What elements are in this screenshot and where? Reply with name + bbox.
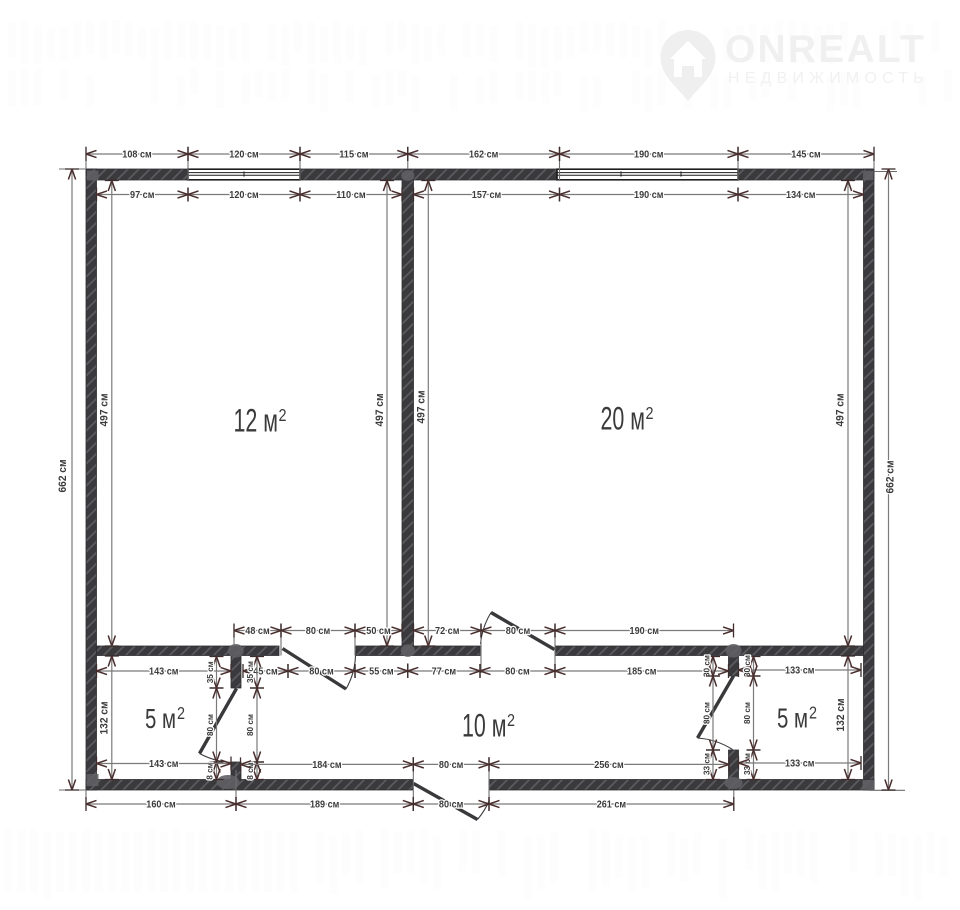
svg-text:185 см: 185 см bbox=[627, 666, 657, 678]
svg-text:2: 2 bbox=[177, 703, 185, 723]
svg-text:497 см: 497 см bbox=[99, 394, 111, 427]
svg-text:НЕДВИЖИМОСТЬ: НЕДВИЖИМОСТЬ bbox=[728, 70, 929, 87]
svg-text:35 см: 35 см bbox=[245, 661, 255, 683]
svg-text:ONREALT: ONREALT bbox=[725, 28, 926, 71]
svg-text:120 см: 120 см bbox=[229, 189, 259, 201]
svg-text:30 см: 30 см bbox=[742, 655, 752, 677]
svg-text:2: 2 bbox=[809, 703, 817, 723]
svg-text:261 см: 261 см bbox=[597, 799, 627, 811]
svg-text:143 см: 143 см bbox=[149, 666, 179, 678]
svg-text:190 см: 190 см bbox=[630, 625, 660, 637]
svg-text:80 см: 80 см bbox=[439, 759, 464, 771]
svg-text:662 см: 662 см bbox=[885, 461, 897, 494]
svg-text:50 см: 50 см bbox=[366, 625, 391, 637]
svg-text:8 см: 8 см bbox=[205, 762, 215, 780]
svg-text:10 м: 10 м bbox=[462, 708, 507, 744]
svg-text:20 м: 20 м bbox=[601, 401, 646, 437]
svg-text:115 см: 115 см bbox=[339, 149, 369, 161]
svg-text:72 см: 72 см bbox=[435, 625, 460, 637]
svg-text:157 см: 157 см bbox=[472, 189, 502, 201]
svg-text:2: 2 bbox=[507, 710, 515, 730]
svg-text:2: 2 bbox=[279, 405, 287, 425]
svg-text:132 см: 132 см bbox=[99, 702, 111, 735]
svg-text:184 см: 184 см bbox=[312, 759, 342, 771]
svg-text:134 см: 134 см bbox=[786, 189, 816, 201]
svg-text:5 м: 5 м bbox=[777, 702, 808, 733]
svg-text:132 см: 132 см bbox=[835, 699, 847, 732]
svg-text:120 см: 120 см bbox=[229, 149, 259, 161]
svg-text:48 см: 48 см bbox=[245, 625, 270, 637]
svg-text:80 см: 80 см bbox=[505, 666, 530, 678]
svg-text:110 см: 110 см bbox=[336, 189, 366, 201]
svg-text:497 см: 497 см bbox=[835, 394, 847, 427]
svg-text:80 см: 80 см bbox=[306, 625, 331, 637]
svg-text:35 см: 35 см bbox=[205, 661, 215, 683]
svg-text:97 см: 97 см bbox=[130, 189, 155, 201]
svg-text:497 см: 497 см bbox=[416, 391, 428, 424]
svg-text:662 см: 662 см bbox=[57, 460, 69, 493]
svg-text:2: 2 bbox=[646, 403, 654, 423]
svg-text:80 см: 80 см bbox=[742, 702, 752, 724]
svg-text:145 см: 145 см bbox=[791, 149, 821, 161]
svg-text:143 см: 143 см bbox=[149, 758, 179, 770]
svg-text:133 см: 133 см bbox=[785, 665, 815, 677]
svg-text:80 см: 80 см bbox=[702, 702, 712, 724]
svg-text:189 см: 189 см bbox=[310, 799, 340, 811]
svg-text:497 см: 497 см bbox=[374, 394, 386, 427]
svg-text:80 см: 80 см bbox=[506, 625, 531, 637]
svg-text:30 см: 30 см bbox=[702, 655, 712, 677]
svg-text:162 см: 162 см bbox=[469, 149, 499, 161]
svg-text:80 см: 80 см bbox=[439, 799, 464, 811]
svg-text:80 см: 80 см bbox=[205, 714, 215, 736]
svg-text:80 см: 80 см bbox=[245, 714, 255, 736]
svg-text:77 см: 77 см bbox=[432, 666, 457, 678]
svg-text:190 см: 190 см bbox=[634, 189, 664, 201]
svg-text:256 см: 256 см bbox=[594, 759, 624, 771]
svg-text:133 см: 133 см bbox=[785, 758, 815, 770]
svg-text:190 см: 190 см bbox=[634, 149, 664, 161]
svg-text:80 см: 80 см bbox=[309, 666, 334, 678]
svg-text:12 м: 12 м bbox=[234, 402, 279, 438]
svg-text:108 см: 108 см bbox=[122, 149, 152, 161]
svg-text:5 м: 5 м bbox=[145, 703, 176, 734]
svg-text:160 см: 160 см bbox=[146, 799, 176, 811]
svg-text:55 см: 55 см bbox=[369, 666, 394, 678]
